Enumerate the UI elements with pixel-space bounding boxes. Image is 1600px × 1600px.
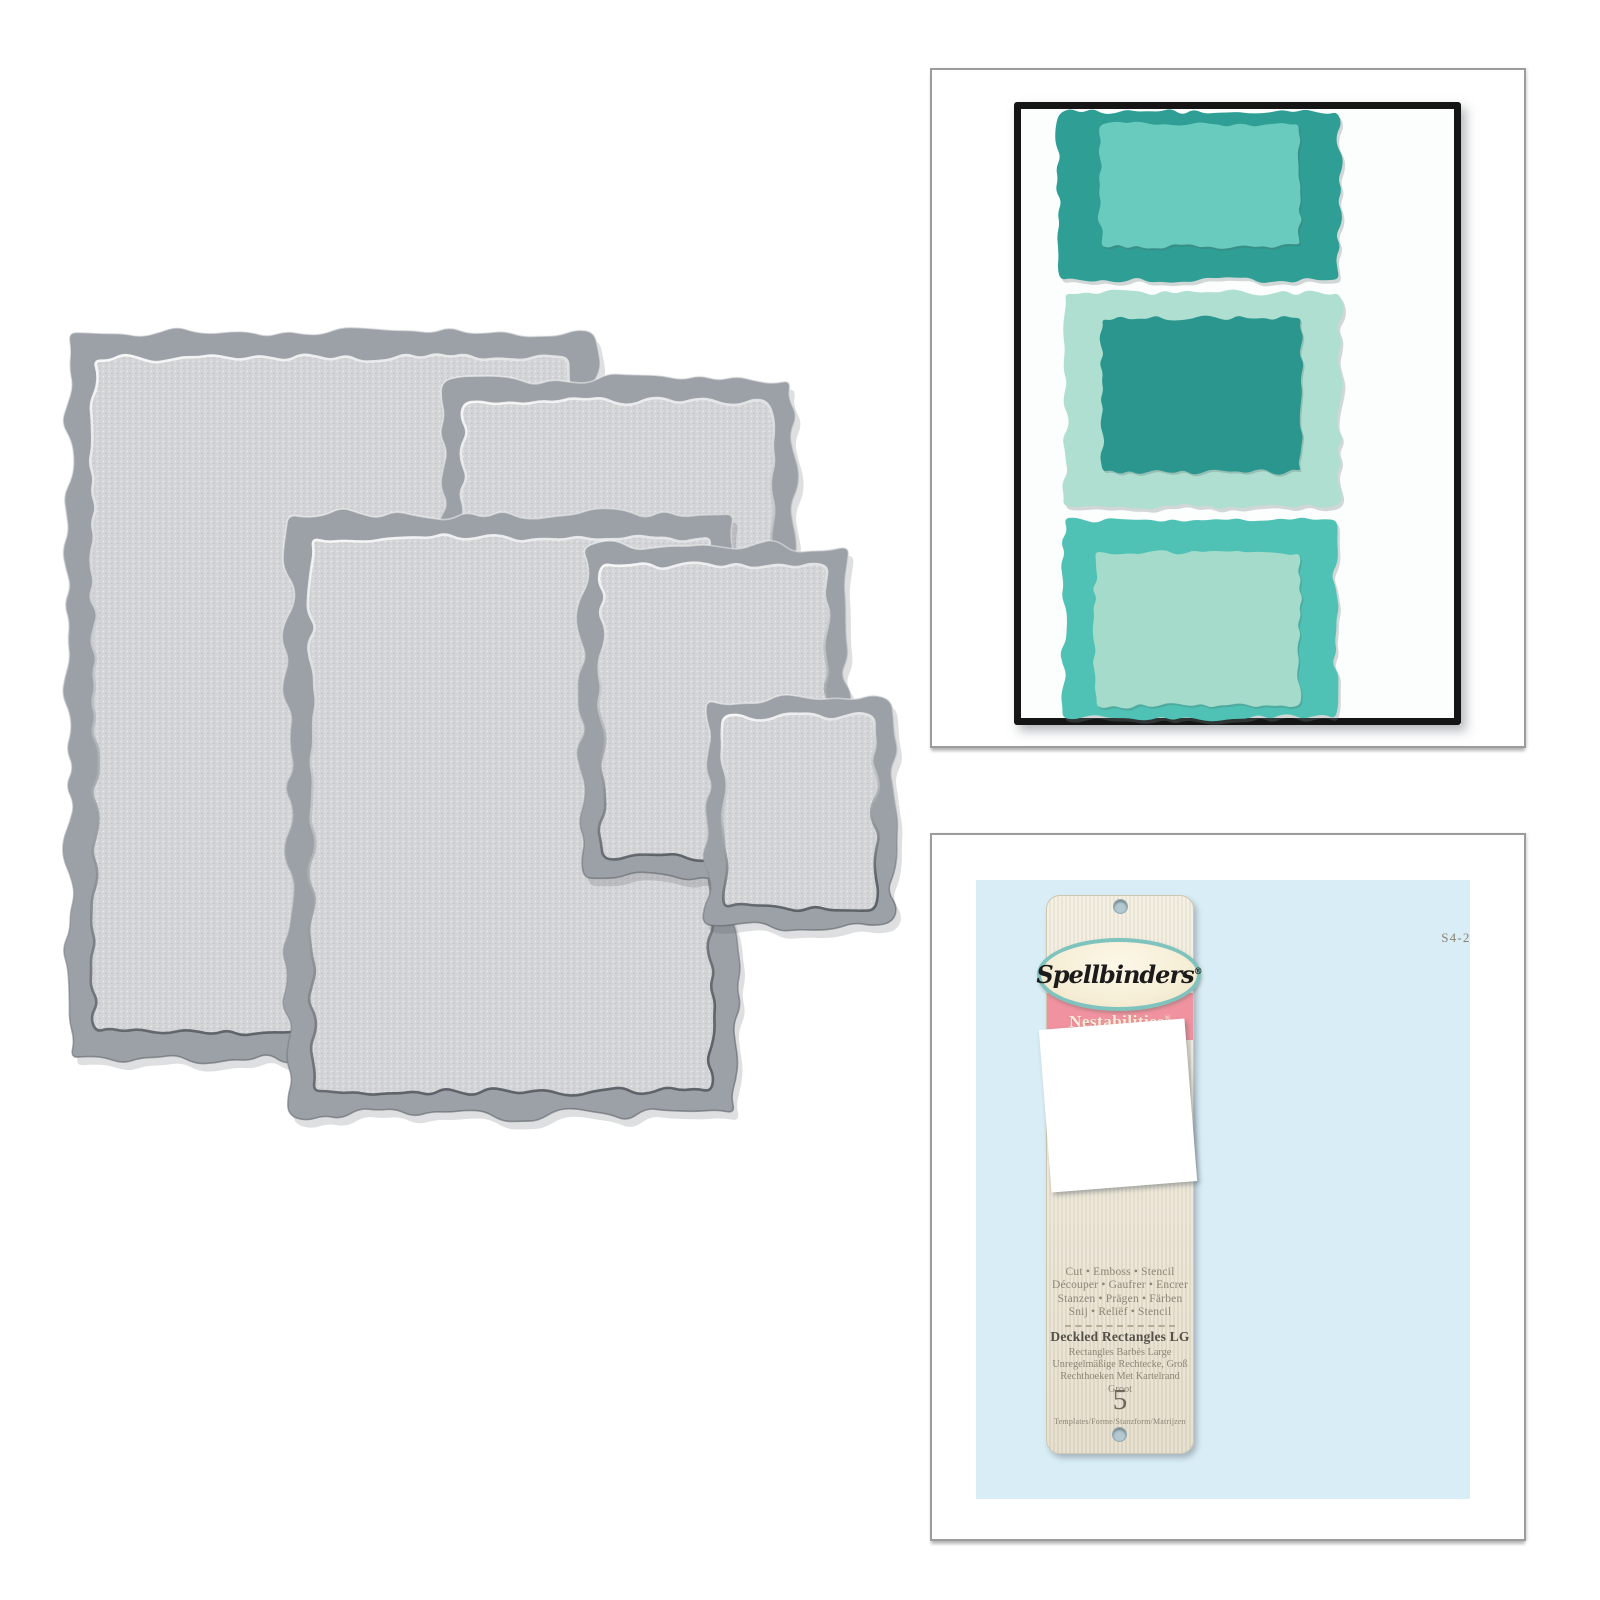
title-fr: Rectangles Barbés Large — [1047, 1347, 1193, 1359]
spellbinders-logo: Spellbinders® — [1037, 938, 1201, 1011]
feature-line-nl: Snij • Reliëf • Stencil — [1047, 1306, 1193, 1319]
title-de: Unregelmäßige Rechtecke, Groß — [1047, 1359, 1193, 1371]
tag-hole-bottom — [1112, 1427, 1127, 1442]
feature-line-fr: Découper • Gaufrer • Encrer — [1047, 1279, 1193, 1292]
die-templates-image — [30, 300, 930, 1180]
product-tag: Spellbinders® Nestabilities® Cut • Embos… — [1046, 895, 1194, 1454]
brand-reg-mark: ® — [1194, 967, 1202, 977]
feature-line-de: Stanzen • Prägen • Färben — [1047, 1293, 1193, 1306]
sample-card — [1014, 102, 1461, 725]
tag-separator — [1065, 1325, 1175, 1327]
deckled-rect-group-3 — [1061, 518, 1341, 725]
tag-hole-top — [1113, 899, 1128, 914]
deckled-rect-group-1 — [1055, 109, 1345, 286]
sample-card-art — [1014, 102, 1461, 725]
feature-line-en: Cut • Emboss • Stencil — [1047, 1266, 1193, 1279]
product-collage: S4-202 Spellbinders® Nestabilities® Cut … — [0, 0, 1600, 1600]
product-title: Deckled Rectangles LG — [1047, 1329, 1193, 1345]
thumbnail-card-art — [1044, 1024, 1192, 1187]
die-template-5 — [703, 695, 902, 939]
template-count-caption: Templates/Forme/Stanzform/Matrijzen — [1047, 1417, 1193, 1426]
deckled-rect-group-2 — [1062, 290, 1345, 513]
package-panel: S4-202 Spellbinders® Nestabilities® Cut … — [930, 833, 1526, 1541]
thumbnail-card — [1039, 1019, 1197, 1193]
feature-list: Cut • Emboss • Stencil Découper • Gaufre… — [1047, 1266, 1193, 1320]
sample-card-panel — [930, 68, 1526, 748]
template-count: 5 — [1047, 1384, 1193, 1417]
brand-name: Spellbinders — [1036, 960, 1193, 989]
